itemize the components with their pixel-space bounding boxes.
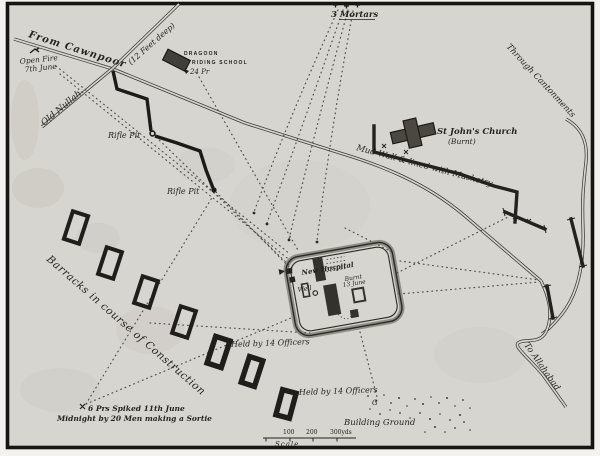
spiked-label-line1: 6 Prs Spiked 11th June [88,404,185,413]
historic-map: From Cawnpoor Open Fire 7th June Old Nul… [0,0,600,456]
scale-100-label: 100 [283,429,295,436]
spiked-label-line2: Midnight by 20 Men making a Sortie [56,414,212,423]
rifle-pit-upper-marker [150,131,155,136]
gun-24pr-label: 24 Pr [189,68,210,76]
dragoon-label-line1: DRAGOON [184,51,219,57]
dragoon-label-line2: RIDING SCHOOL [192,60,248,66]
scale-caption: Scale [275,441,299,449]
g-marker-label: G [372,399,378,407]
scale-300-label: 300yds [330,429,352,436]
mortars-label: 3 Mortars [331,10,378,20]
map-canvas: From Cawnpoor Open Fire 7th June Old Nul… [0,0,600,456]
church-label-line1: St John's Church [437,127,517,137]
scale-200-label: 200 [306,429,318,436]
corner-bastion [350,309,359,318]
building-ground-label: Building Ground [343,418,416,428]
rifle-pit-lower-marker [211,187,216,192]
church-label-line2: (Burnt) [448,137,476,146]
rifle-pit-lower-label: Rifle Pit [166,187,200,196]
rifle-pit-upper-label: Rifle Pit [107,131,141,140]
